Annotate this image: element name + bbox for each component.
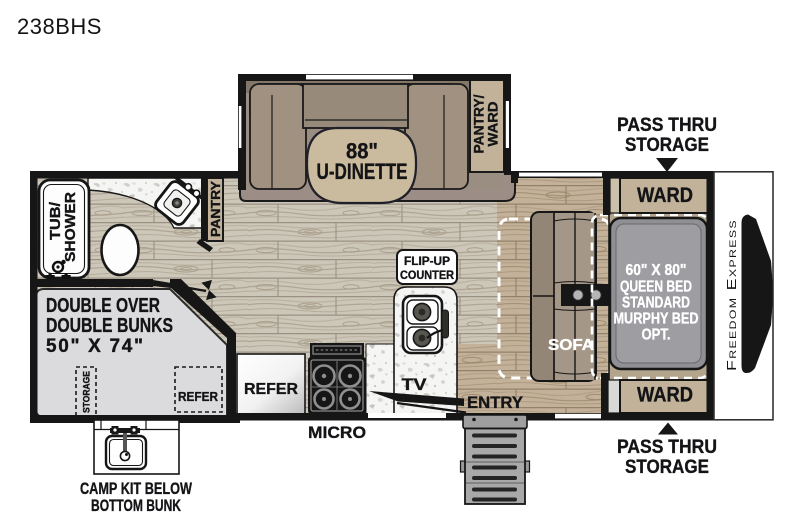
svg-text:50" X 74": 50" X 74" bbox=[46, 336, 143, 357]
svg-text:STANDARD: STANDARD bbox=[622, 295, 690, 312]
svg-text:OPT.: OPT. bbox=[642, 327, 671, 344]
svg-text:WARD: WARD bbox=[485, 102, 501, 147]
svg-text:PASS THRU: PASS THRU bbox=[617, 115, 717, 136]
svg-text:238BHS: 238BHS bbox=[17, 14, 102, 39]
svg-text:REFER: REFER bbox=[244, 381, 298, 398]
svg-text:QUEEN BED: QUEEN BED bbox=[620, 279, 692, 296]
svg-text:PANTRY: PANTRY bbox=[208, 181, 223, 237]
svg-text:STORAGE: STORAGE bbox=[625, 457, 709, 478]
svg-text:BOTTOM BUNK: BOTTOM BUNK bbox=[91, 497, 181, 515]
svg-text:CAMP KIT BELOW: CAMP KIT BELOW bbox=[80, 480, 192, 498]
svg-text:U-DINETTE: U-DINETTE bbox=[317, 159, 408, 184]
svg-text:COUNTER: COUNTER bbox=[400, 270, 455, 282]
svg-text:SHOWER: SHOWER bbox=[62, 192, 79, 262]
svg-text:STORAGE: STORAGE bbox=[82, 371, 92, 413]
svg-text:60" X 80": 60" X 80" bbox=[626, 262, 687, 279]
svg-text:SOFA: SOFA bbox=[548, 337, 594, 354]
svg-text:MICRO: MICRO bbox=[308, 423, 366, 442]
svg-text:DOUBLE OVER: DOUBLE OVER bbox=[46, 295, 160, 317]
svg-text:ENTRY: ENTRY bbox=[467, 393, 524, 412]
svg-text:WARD: WARD bbox=[637, 384, 693, 407]
svg-text:WARD: WARD bbox=[637, 184, 693, 207]
svg-text:DOUBLE BUNKS: DOUBLE BUNKS bbox=[46, 315, 173, 337]
svg-text:REFER: REFER bbox=[178, 389, 219, 404]
svg-text:FLIP-UP: FLIP-UP bbox=[404, 256, 450, 268]
svg-text:STORAGE: STORAGE bbox=[625, 135, 709, 156]
svg-text:MURPHY BED: MURPHY BED bbox=[614, 311, 699, 328]
svg-text:TV: TV bbox=[402, 375, 428, 394]
svg-text:PASS THRU: PASS THRU bbox=[617, 437, 717, 458]
svg-text:Freedom Express: Freedom Express bbox=[724, 219, 739, 371]
